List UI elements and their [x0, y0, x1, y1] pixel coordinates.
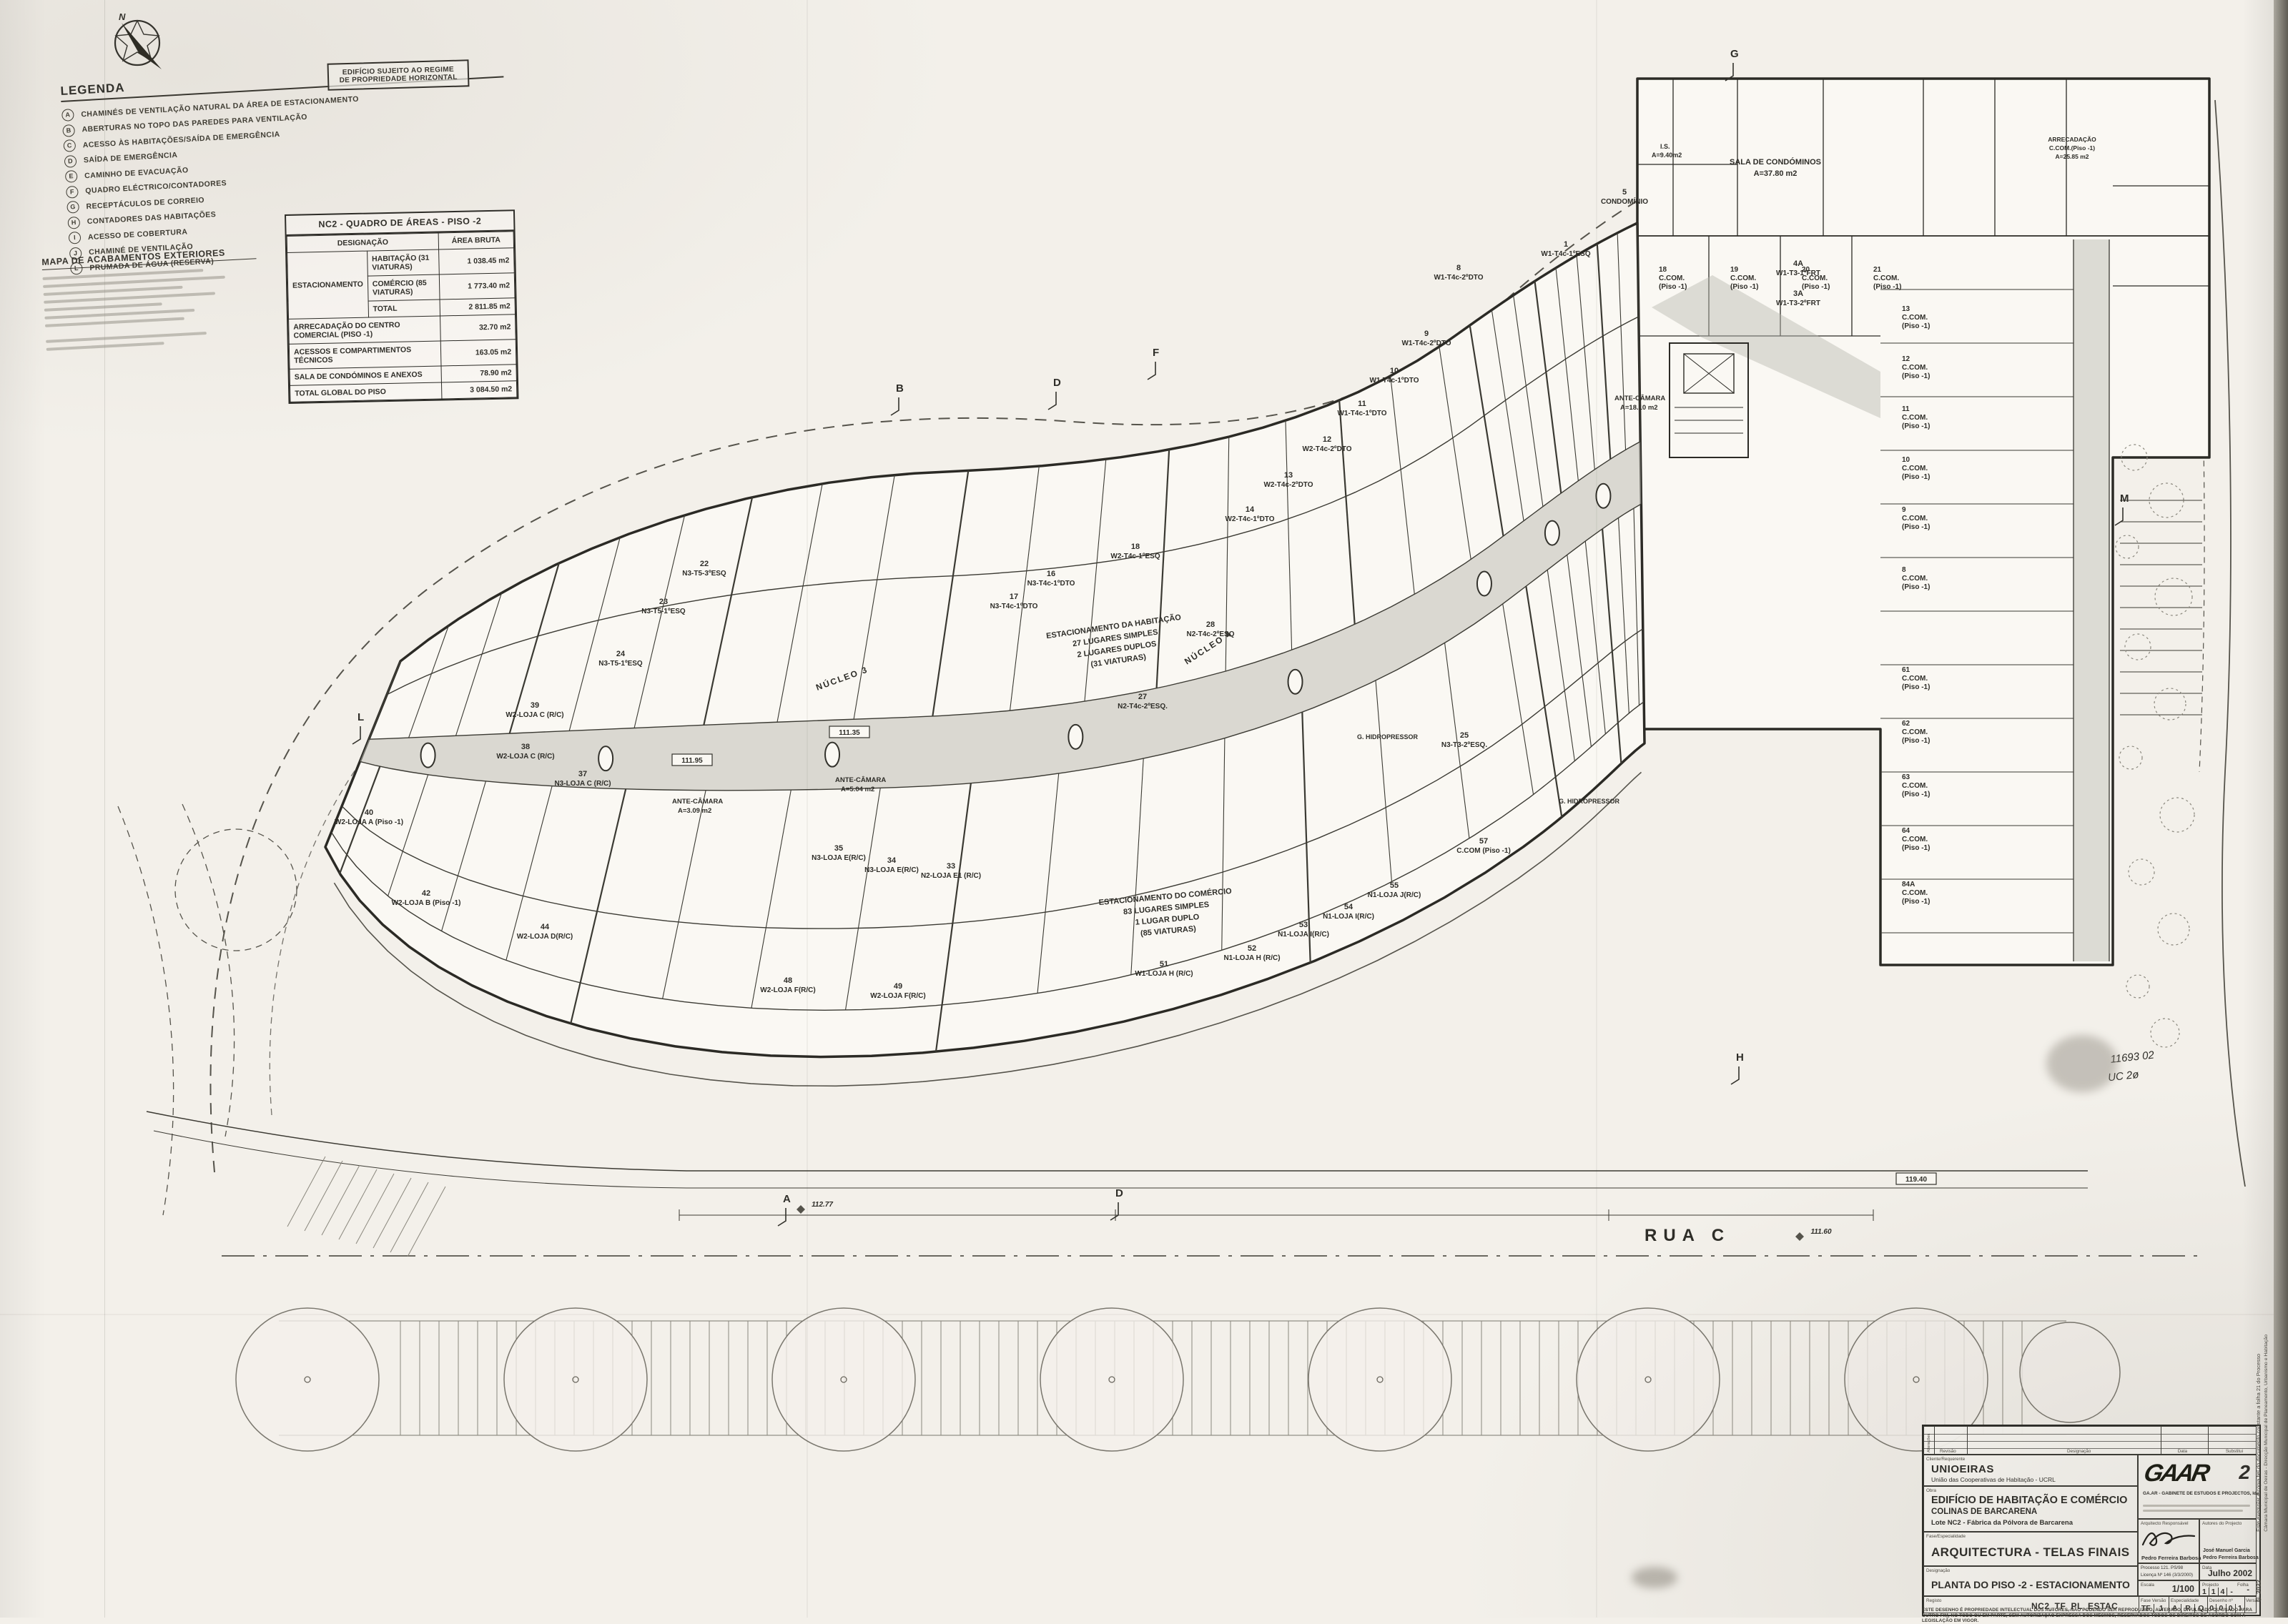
illegible-text-line [46, 342, 164, 351]
processo: Processo 121. PS/98 [2141, 1565, 2183, 1570]
column-pill [598, 746, 613, 771]
grid-tick [352, 726, 360, 744]
vegetation [2129, 859, 2154, 885]
illegible-text-line [2143, 1510, 2243, 1512]
obra-line3: Lote NC2 - Fábrica da Pólvora de Barcare… [1931, 1519, 2073, 1527]
grid-letter: H [1736, 1051, 1744, 1064]
margin-certification-note: Este exemplar é cópia fiel do documento … [2255, 1354, 2262, 1532]
row-label: TOTAL GLOBAL DO PISO [290, 382, 442, 402]
parking-stall-line [373, 1178, 411, 1248]
row-label: COMÉRCIO (85 VIATURAS) [368, 274, 440, 301]
rev-col-label: Alterações [1927, 1434, 1931, 1452]
vegetation [2155, 578, 2192, 615]
author-name: Pedro Ferreira Barbosa [2203, 1555, 2259, 1560]
grid-tick [1731, 1066, 1739, 1084]
data-value: Julho 2002 [2208, 1568, 2252, 1578]
room-label: ARRECADAÇÃO [2048, 136, 2096, 143]
margin-copyright-year: © 2022 [2255, 1580, 2262, 1603]
room-label: C.COM.(Piso -1) [2049, 144, 2095, 152]
elevation-marker [1795, 1232, 1804, 1241]
projecto-cell: Projecto Folha 1 1 4 - - [2199, 1580, 2257, 1596]
illegible-text-line [45, 317, 184, 327]
elevation-value: 111.35 [839, 729, 860, 737]
room-area: A=18.10 m2 [1620, 404, 1658, 412]
row-label: ARRECADAÇÃO DO CENTRO COMERCIAL (PISO -1… [289, 316, 441, 344]
grid-tick [891, 397, 899, 415]
smudge [2046, 1035, 2118, 1092]
room-area: A=37.80 m2 [1754, 169, 1798, 178]
scanned-floor-plan-sheet: { "sheet": { "north": "N", "notice1": "E… [0, 0, 2288, 1618]
grid-letter: L [357, 711, 364, 723]
north-label: N [119, 11, 126, 22]
projecto-digit: 4 [2218, 1588, 2227, 1596]
tree [1577, 1308, 1720, 1451]
elevation-marker [797, 1205, 805, 1214]
elevation-value: 111.60 [1810, 1228, 1832, 1236]
column-pill [825, 743, 839, 767]
rev-col-label: Designação [2067, 1449, 2091, 1454]
legend-key-icon: H [67, 216, 80, 229]
illegible-text-line [2143, 1505, 2250, 1507]
projecto-digit: 1 [2200, 1588, 2209, 1596]
logo-cell: GAAR 2 GA.AR - GABINETE DE ESTUDOS E PRO… [2138, 1455, 2257, 1519]
areas-table: NC2 - QUADRO DE ÁREAS - PISO -2 DESIGNAÇ… [285, 209, 518, 404]
fase-value: ARQUITECTURA - TELAS FINAIS [1931, 1545, 2129, 1560]
tree [2020, 1322, 2120, 1422]
margin-municipality-note: Câmara Municipal de Oeiras - Direcção Mu… [2264, 1335, 2269, 1532]
legend-key-icon: E [65, 170, 78, 183]
data-cell: Data Julho 2002 [2199, 1563, 2257, 1580]
room-label: ANTE-CÂMARA [1614, 394, 1665, 402]
col-area-bruta: ÁREA BRUTA [438, 232, 513, 249]
column-pill [1068, 725, 1083, 749]
client-label: Cliente/Requerente [1926, 1457, 1965, 1462]
elevation-value: 119.40 [1905, 1176, 1927, 1184]
margin-column: © 2022 Este exemplar é cópia fiel do doc… [2255, 0, 2274, 1618]
architect-name: Pedro Ferreira Barbosa [2141, 1555, 2201, 1561]
escala-cell: Escala 1/100 [2138, 1580, 2199, 1596]
vegetation [2126, 975, 2149, 998]
legend-item-label: CAMINHO DE EVACUAÇÃO [84, 166, 189, 180]
signature [2139, 1526, 2199, 1550]
obra-line2: COLINAS DE BARCARENA [1931, 1507, 2037, 1516]
row-value: 78.90 m2 [441, 365, 516, 382]
room-area: A=5.04 m2 [841, 786, 874, 793]
parking-stall-line [390, 1182, 428, 1252]
gaar-logo: GAAR [2141, 1460, 2210, 1487]
processo-cell: Processo 121. PS/98 Licença Nº 146 (3/3/… [2138, 1563, 2199, 1580]
elevation-value: 111.95 [681, 757, 703, 765]
obra-label: Obra [1926, 1488, 1936, 1493]
stall-label: 8W1-T4c-2ºDTO [1434, 264, 1483, 282]
legend-key-icon: D [64, 154, 77, 167]
column-pill [1545, 521, 1559, 545]
author-name: José Manuel Garcia [2203, 1548, 2250, 1553]
elevation-value: 112.77 [812, 1201, 833, 1209]
room-area: A=3.09 m2 [678, 807, 711, 815]
designacao-cell: Designação PLANTA DO PISO -2 - ESTACIONA… [1923, 1566, 2138, 1596]
row-value: 2 811.85 m2 [440, 298, 515, 316]
designacao-value: PLANTA DO PISO -2 - ESTACIONAMENTO [1931, 1579, 2130, 1590]
vegetation [2151, 1019, 2179, 1047]
escala-label: Escala [2141, 1583, 2154, 1588]
legend-item-label: CONTADORES DAS HABITAÇÕES [87, 210, 216, 226]
fase-cell: Fase/Especialidade ARQUITECTURA - TELAS … [1923, 1532, 2138, 1566]
grid-tick [778, 1208, 786, 1226]
parking-stall-line [339, 1169, 377, 1239]
architect-label: Arquitecto Responsável [2141, 1521, 2189, 1526]
horizontal-property-notice: EDIFÍCIO SUJEITO AO REGIME DE PROPRIEDAD… [327, 59, 470, 91]
column-pill [421, 743, 435, 768]
legend-key-icon: I [69, 232, 82, 244]
hidropressor-label-2: G. HIDROPRESSOR [1559, 798, 1620, 805]
vegetation [2160, 798, 2194, 832]
client-cell: Cliente/Requerente UNIOEIRAS União das C… [1923, 1455, 2138, 1486]
grid-letter: M [2120, 492, 2129, 505]
fase-label: Fase/Especialidade [1926, 1534, 1966, 1539]
tree [1040, 1308, 1183, 1451]
parking-stall-line [305, 1161, 342, 1231]
projecto-digit: 1 [2209, 1588, 2218, 1596]
tree [504, 1308, 647, 1451]
stall-label: 1W1-T4c-1ºESQ [1541, 240, 1590, 258]
revision-strip: Alterações Revisão Designação Data Subst… [1923, 1426, 2257, 1455]
grid-letter: F [1153, 347, 1159, 359]
grid-tick [1148, 362, 1155, 380]
group-estacionamento: ESTACIONAMENTO [287, 251, 369, 319]
grid-tick [1110, 1202, 1118, 1220]
room-area: A=9.40m2 [1652, 152, 1682, 159]
designacao-label: Designação [1926, 1568, 1950, 1573]
registo-label: Registo [1926, 1598, 1941, 1603]
illegible-text-line [46, 332, 207, 343]
legend-item-label: RECEPTÁCULOS DE CORREIO [86, 195, 204, 210]
legend-key-icon: A [61, 109, 74, 122]
legend-key-icon: F [66, 185, 79, 198]
projecto-digit: - [2227, 1588, 2236, 1596]
stall-label: 9W1-T4c-2ºDTO [1401, 330, 1451, 347]
vegetation [2158, 914, 2189, 945]
obra-cell: Obra EDIFÍCIO DE HABITAÇÃO E COMÉRCIO CO… [1923, 1486, 2138, 1532]
grid-letter: G [1730, 48, 1739, 60]
escala-value: 1/100 [2172, 1584, 2194, 1594]
parking-stall-line [356, 1174, 394, 1244]
row-label: HABITAÇÃO (31 VIATURAS) [367, 249, 439, 276]
room-label: SALA DE CONDÓMINOS [1730, 157, 1821, 167]
folha-value: - [2247, 1585, 2249, 1594]
smudge [1632, 1567, 1677, 1588]
street-name: RUA C [1644, 1226, 1730, 1245]
room-label: ANTE-CÂMARA [835, 776, 886, 784]
licenca: Licença Nº 146 (3/3/2000) [2141, 1573, 2193, 1578]
authors-label: Autores do Projecto [2202, 1521, 2242, 1526]
grid-letter: D [1053, 377, 1061, 389]
grid-letter: B [896, 382, 904, 395]
legend-item-label: ACESSO DE COBERTURA [88, 227, 188, 242]
row-value: 1 038.45 m2 [439, 248, 515, 274]
legend-key-icon: B [62, 124, 75, 137]
finishes-panel: MAPA DE ACABAMENTOS EXTERIORES [41, 246, 261, 356]
row-label: ACESSOS E COMPARTIMENTOS TÉCNICOS [289, 341, 441, 369]
room-label: ANTE-CÂMARA [672, 797, 723, 806]
scan-edge [2274, 0, 2288, 1618]
authors-cell: Autores do Projecto José Manuel Garcia P… [2199, 1519, 2257, 1563]
tree [1308, 1308, 1451, 1451]
obra-line1: EDIFÍCIO DE HABITAÇÃO E COMÉRCIO [1931, 1495, 2127, 1506]
legend-key-icon: C [63, 139, 76, 152]
paper-crease [0, 1314, 2288, 1315]
illegible-text-line [44, 302, 162, 312]
legend-item-label: QUADRO ELÉCTRICO/CONTADORES [85, 179, 227, 195]
column-pill [1288, 670, 1303, 694]
paper-crease [807, 0, 808, 1618]
row-value: 32.70 m2 [440, 315, 516, 341]
client-name: UNIOEIRAS [1931, 1463, 1994, 1475]
parking-stall-line [287, 1157, 325, 1227]
row-value: 1 773.40 m2 [439, 273, 515, 299]
row-value: 3 084.50 m2 [441, 381, 516, 399]
parking-stall-line [322, 1165, 360, 1235]
rev-col-label: Revisão [1940, 1449, 1956, 1454]
row-value: 163.05 m2 [440, 340, 516, 366]
row-label: TOTAL [368, 299, 440, 317]
column-pill [1477, 571, 1491, 595]
vegetation [2119, 746, 2142, 769]
tree [772, 1308, 915, 1451]
tree [236, 1308, 379, 1451]
grid-letter: A [783, 1193, 791, 1205]
street-lines [147, 1111, 2202, 1256]
column-pill [1596, 484, 1610, 508]
firm-name: GA.AR - GABINETE DE ESTUDOS E PROJECTOS,… [2143, 1491, 2260, 1496]
client-subtitle: União das Cooperativas de Habitação - UC… [1931, 1476, 2056, 1483]
parking-stall-line [408, 1187, 445, 1257]
architect-cell: Arquitecto Responsável Pedro Ferreira Ba… [2138, 1519, 2199, 1563]
sheet-page-number: 2 [2239, 1461, 2250, 1484]
grid-tick [1048, 392, 1056, 410]
vegetation [2125, 634, 2151, 660]
legend-item-label: SAÍDA DE EMERGÊNCIA [84, 151, 178, 164]
room-area: A=25.85 m2 [2055, 153, 2089, 160]
rev-col-label: Substitui [2226, 1449, 2243, 1454]
copyright-note: ESTE DESENHO É PROPRIEDADE INTELECTUAL D… [1922, 1608, 2252, 1624]
grid-tick [2115, 508, 2123, 525]
hidropressor-label: G. HIDROPRESSOR [1357, 733, 1419, 741]
vegetation [2116, 535, 2139, 558]
rev-col-label: Data [2178, 1449, 2187, 1454]
paper-crease [1596, 0, 1597, 1618]
grid-letter: D [1115, 1187, 1123, 1199]
north-compass-icon: N [115, 11, 162, 69]
legend-key-icon: G [66, 201, 79, 214]
room-label: I.S. [1660, 143, 1670, 150]
title-block: Alterações Revisão Designação Data Subst… [1922, 1425, 2261, 1616]
